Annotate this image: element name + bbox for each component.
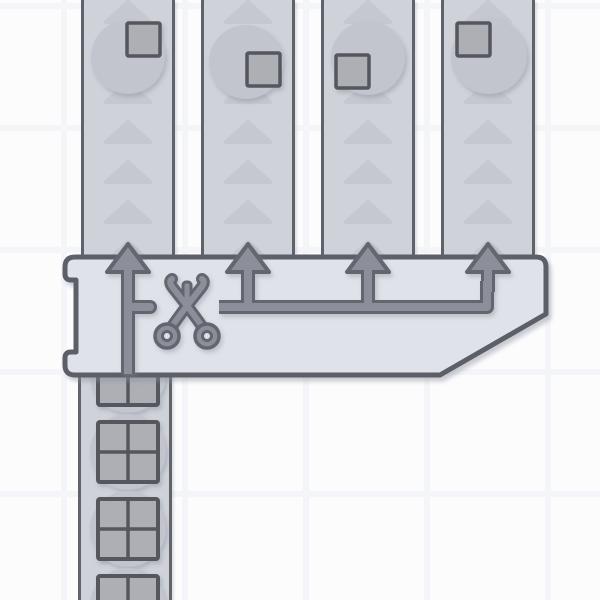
grid-line-vertical bbox=[61, 0, 67, 600]
full-square-item bbox=[90, 491, 166, 567]
conveyor-belt-output-1[interactable] bbox=[81, 0, 175, 262]
quarter-square-shape bbox=[247, 53, 280, 86]
cutter-building[interactable] bbox=[65, 244, 546, 375]
quarter-square-item bbox=[91, 20, 165, 94]
quarter-square-shape bbox=[457, 23, 490, 56]
conveyor-belt-output-2[interactable] bbox=[201, 0, 295, 262]
game-viewport bbox=[0, 0, 600, 600]
quarter-square-item bbox=[451, 18, 527, 94]
scissor-handle-hole bbox=[163, 332, 172, 341]
scissor-handle-hole bbox=[203, 332, 212, 341]
factory-scene bbox=[0, 0, 600, 600]
quarter-square-item bbox=[331, 21, 405, 95]
quarter-square-shape bbox=[336, 55, 369, 88]
full-square-item bbox=[90, 414, 166, 490]
quarter-square-item bbox=[209, 25, 283, 99]
quarter-square-shape bbox=[127, 23, 160, 56]
conveyor-belt-output-4[interactable] bbox=[441, 0, 535, 262]
conveyor-belt-output-3[interactable] bbox=[321, 0, 415, 262]
cutter-building-body[interactable] bbox=[65, 257, 546, 375]
